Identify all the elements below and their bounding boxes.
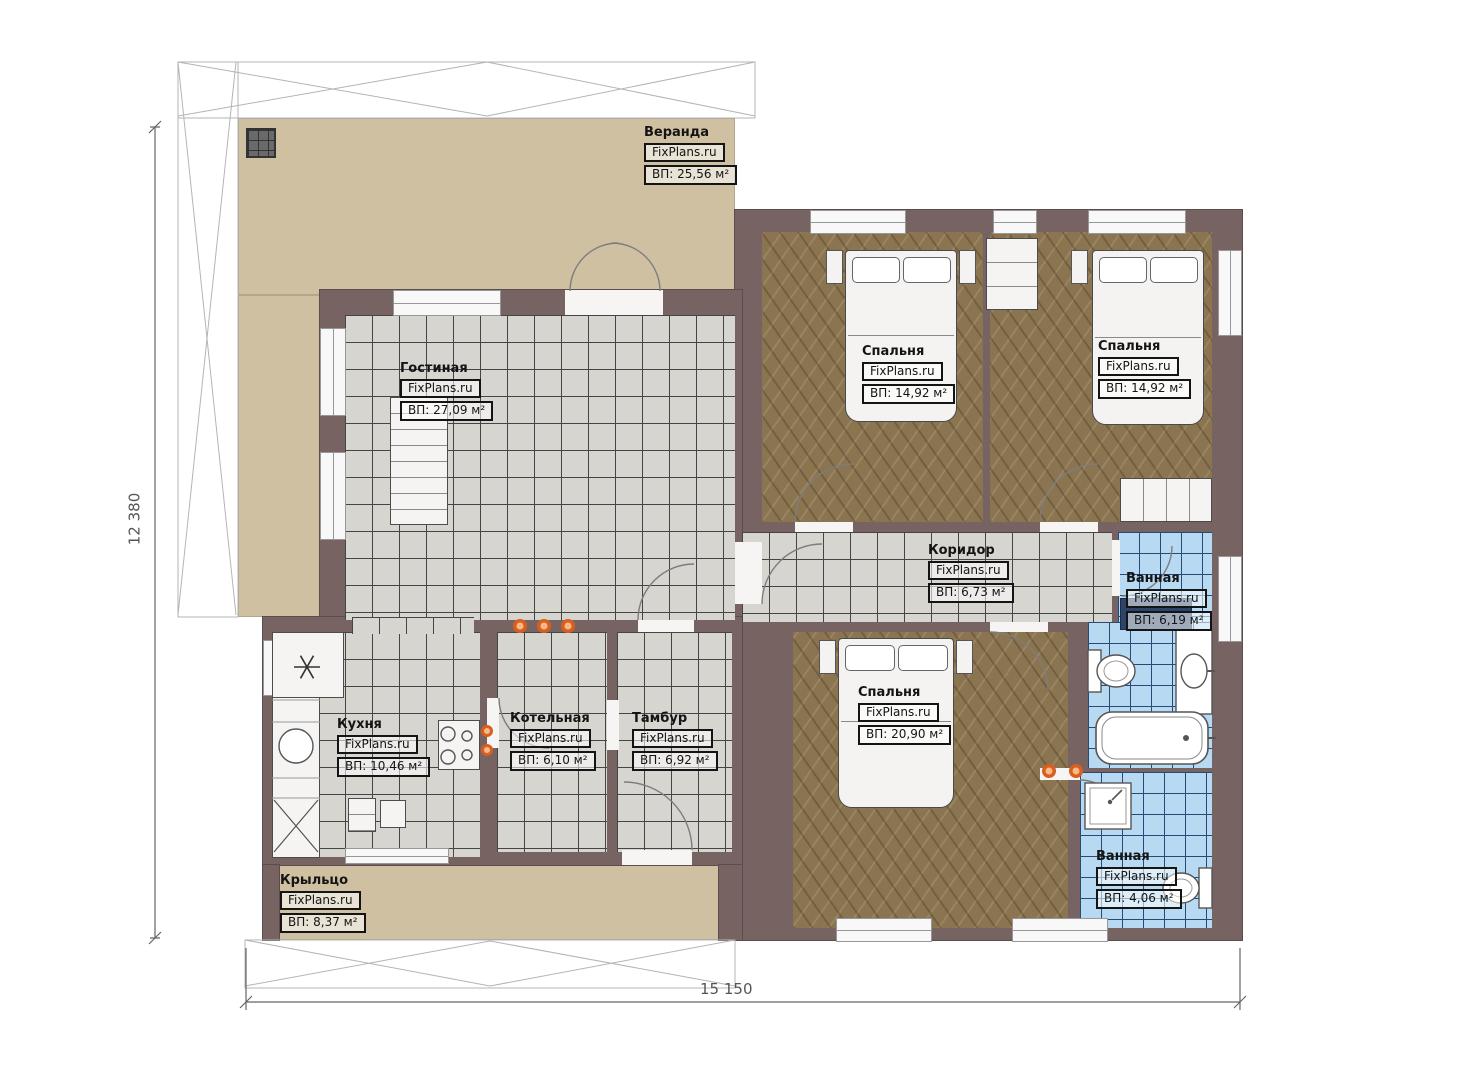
door-gap-entrance [622, 850, 692, 865]
pillow [845, 645, 895, 671]
room-label-kitchen: Кухня FixPlans.ru ВП: 10,46 м² [337, 718, 430, 780]
vendor-tag: FixPlans.ru [644, 143, 725, 163]
door-gap-living-corridor [735, 542, 762, 604]
pillow [852, 257, 900, 283]
nightstand [959, 250, 976, 284]
room-label-bathroom-2: Ванная FixPlans.ru ВП: 4,06 м² [1096, 850, 1182, 912]
window [1012, 918, 1108, 942]
room-label-corridor: Коридор FixPlans.ru ВП: 6,73 м² [928, 544, 1014, 606]
room-name: Гостиная [400, 362, 493, 376]
door-gap-bathroom-2 [1040, 768, 1080, 780]
room-label-veranda: Веранда FixPlans.ru ВП: 25,56 м² [644, 126, 737, 188]
window [810, 210, 906, 234]
room-name: Спальня [1098, 340, 1191, 354]
window [345, 848, 449, 864]
vendor-tag: FixPlans.ru [858, 703, 939, 723]
veranda-deck-side [238, 295, 322, 617]
nightstand [956, 640, 973, 674]
closet-between-bedrooms [986, 238, 1038, 310]
pillow [898, 645, 948, 671]
door-gap-boiler-vestibule [607, 700, 619, 750]
room-name: Тамбур [632, 712, 718, 726]
bed-fold-line [1095, 337, 1201, 338]
vendor-tag: FixPlans.ru [632, 729, 713, 749]
area-tag: ВП: 14,92 м² [1098, 379, 1191, 399]
area-tag: ВП: 14,92 м² [862, 384, 955, 404]
vendor-tag: FixPlans.ru [1096, 867, 1177, 887]
dimension-width-label: 15 150 [700, 980, 753, 998]
area-tag: ВП: 4,06 м² [1096, 889, 1182, 909]
area-tag: ВП: 6,73 м² [928, 583, 1014, 603]
room-name: Ванная [1126, 572, 1212, 586]
opening-living-kitchen [352, 617, 474, 634]
floor-corridor [742, 532, 1112, 622]
vendor-tag: FixPlans.ru [1126, 589, 1207, 609]
room-label-bathroom-1: Ванная FixPlans.ru ВП: 6,19 м² [1126, 572, 1212, 634]
kitchen-cabinet [380, 800, 406, 828]
window [1218, 556, 1242, 642]
dishwasher [348, 798, 376, 832]
vendor-tag: FixPlans.ru [400, 379, 481, 399]
window [320, 452, 346, 540]
window [320, 328, 346, 416]
area-tag: ВП: 10,46 м² [337, 757, 430, 777]
nightstand [819, 640, 836, 674]
vendor-tag: FixPlans.ru [1098, 357, 1179, 377]
door-gap-boiler [487, 698, 499, 748]
room-label-porch: Крыльцо FixPlans.ru ВП: 8,37 м² [280, 874, 366, 936]
door-gap-bedroom-2 [1040, 522, 1098, 532]
window [1088, 210, 1186, 234]
room-name: Котельная [510, 712, 596, 726]
wardrobe [1120, 478, 1212, 522]
wall-porch-stub-right [719, 865, 742, 940]
window [836, 918, 932, 942]
chimney [246, 128, 276, 158]
bed-fold-line [848, 335, 954, 336]
vendor-tag: FixPlans.ru [510, 729, 591, 749]
room-label-bedroom-3: Спальня FixPlans.ru ВП: 20,90 м² [858, 686, 951, 748]
room-label-living: Гостиная FixPlans.ru ВП: 27,09 м² [400, 362, 493, 424]
nightstand [826, 250, 843, 284]
room-name: Кухня [337, 718, 430, 732]
door-gap-bathroom-1 [1112, 540, 1120, 596]
room-name: Крыльцо [280, 874, 366, 888]
wall-porch-stub-left [263, 865, 279, 940]
room-name: Ванная [1096, 850, 1182, 864]
door-gap-bedroom-1 [795, 522, 853, 532]
vendor-tag: FixPlans.ru [280, 891, 361, 911]
area-tag: ВП: 8,37 м² [280, 913, 366, 933]
area-tag: ВП: 6,92 м² [632, 751, 718, 771]
room-label-bedroom-1: Спальня FixPlans.ru ВП: 14,92 м² [862, 345, 955, 407]
room-name: Веранда [644, 126, 737, 140]
window [993, 210, 1037, 234]
room-label-vestibule: Тамбур FixPlans.ru ВП: 6,92 м² [632, 712, 718, 774]
area-tag: ВП: 25,56 м² [644, 165, 737, 185]
vendor-tag: FixPlans.ru [862, 362, 943, 382]
door-gap-bedroom-3 [990, 622, 1048, 632]
area-tag: ВП: 6,19 м² [1126, 611, 1212, 631]
room-label-bedroom-2: Спальня FixPlans.ru ВП: 14,92 м² [1098, 340, 1191, 402]
room-name: Коридор [928, 544, 1014, 558]
pillow [903, 257, 951, 283]
room-name: Спальня [858, 686, 951, 700]
floor-plan: Веранда FixPlans.ru ВП: 25,56 м² Гостина… [0, 0, 1473, 1080]
dimension-height-label: 12 380 [125, 493, 143, 546]
floor-bathroom-1 [1088, 622, 1212, 768]
door-gap-veranda [565, 290, 663, 315]
area-tag: ВП: 6,10 м² [510, 751, 596, 771]
door-gap-vestibule-living [638, 620, 694, 632]
pillow [1150, 257, 1198, 283]
stove [438, 720, 480, 770]
vendor-tag: FixPlans.ru [337, 735, 418, 755]
vendor-tag: FixPlans.ru [928, 561, 1009, 581]
window [1218, 250, 1242, 336]
area-tag: ВП: 27,09 м² [400, 401, 493, 421]
area-tag: ВП: 20,90 м² [858, 725, 951, 745]
room-name: Спальня [862, 345, 955, 359]
window [393, 290, 501, 316]
fridge [272, 632, 344, 698]
pillow [1099, 257, 1147, 283]
nightstand [1071, 250, 1088, 284]
room-label-boiler: Котельная FixPlans.ru ВП: 6,10 м² [510, 712, 596, 774]
